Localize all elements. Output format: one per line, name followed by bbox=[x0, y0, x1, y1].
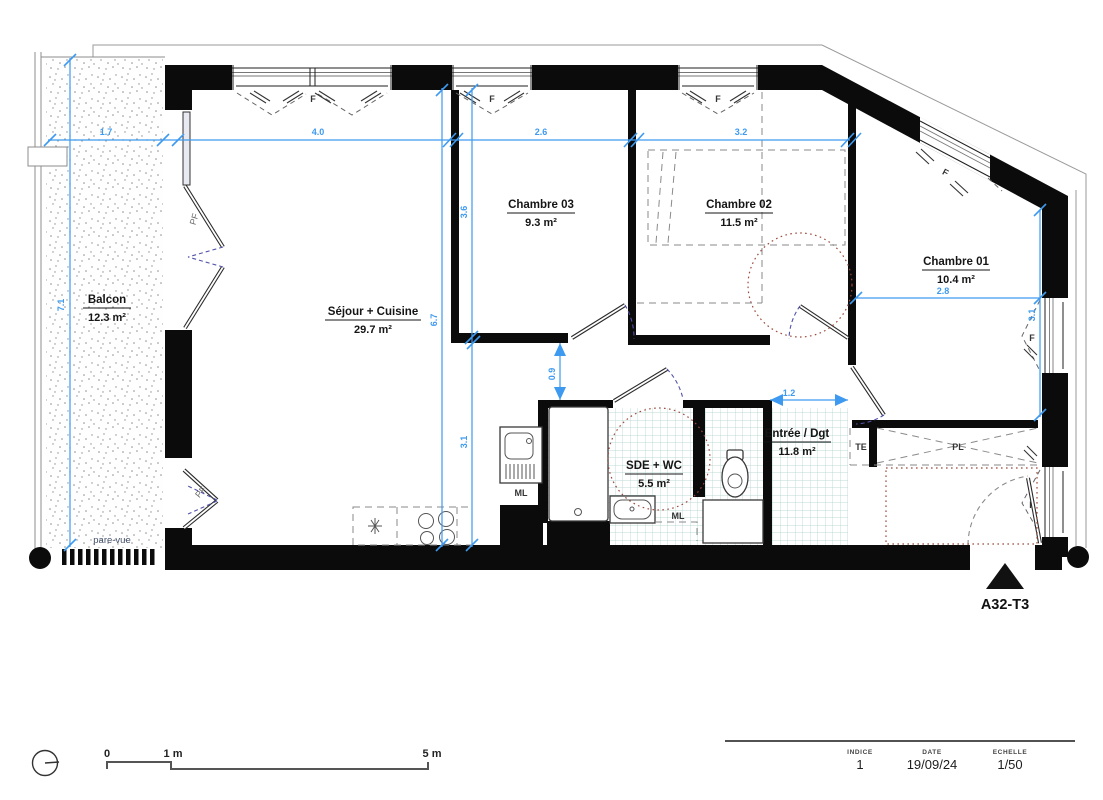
svg-text:5.5 m²: 5.5 m² bbox=[638, 478, 670, 490]
balcony-french-door-upper: PF bbox=[185, 186, 223, 328]
scale-five-meters: 5 m bbox=[423, 748, 442, 760]
kitchen-washer-unit: ML bbox=[500, 427, 542, 498]
dim-chambre01-width: 2.8 bbox=[937, 286, 950, 296]
window-label: F bbox=[715, 94, 721, 104]
dim-sejour-south-height: 3.1 bbox=[459, 436, 469, 449]
balcony-french-door-lower: PF bbox=[184, 470, 217, 528]
svg-text:Balcon: Balcon bbox=[88, 294, 126, 306]
indice-label: INDICE bbox=[847, 749, 873, 756]
chambre02-door bbox=[789, 306, 848, 339]
bathroom-door bbox=[614, 369, 683, 401]
room-label-chambre02: Chambre 02 11.5 m² bbox=[705, 199, 773, 229]
indice-value: 1 bbox=[856, 757, 863, 772]
svg-text:Entrée / Dgt: Entrée / Dgt bbox=[765, 428, 830, 440]
echelle-value: 1/50 bbox=[997, 757, 1022, 772]
dim-balcony-width: 1.7 bbox=[100, 127, 113, 137]
window-label: F bbox=[941, 167, 951, 179]
date-label: DATE bbox=[922, 749, 942, 756]
privacy-screen-label: pare-vue bbox=[93, 535, 131, 546]
entrance-marker: A32-T3 bbox=[981, 563, 1029, 613]
title-block: INDICE 1 DATE 19/09/24 ECHELLE 1/50 bbox=[725, 741, 1075, 772]
svg-text:11.5 m²: 11.5 m² bbox=[720, 217, 758, 229]
closet-label: PL bbox=[952, 442, 964, 452]
shower-tray bbox=[549, 407, 608, 521]
turning-circle-chambre02 bbox=[748, 233, 852, 337]
dim-hall-width: 0.9 bbox=[547, 368, 557, 381]
french-door-label: PF bbox=[193, 484, 208, 500]
echelle-label: ECHELLE bbox=[993, 749, 1028, 756]
svg-text:9.3 m²: 9.3 m² bbox=[525, 217, 557, 229]
dim-sejour-height: 6.7 bbox=[429, 314, 439, 327]
dim-chambre03-height: 3.6 bbox=[459, 206, 469, 219]
date-value: 19/09/24 bbox=[907, 757, 958, 772]
svg-text:Chambre 01: Chambre 01 bbox=[923, 256, 989, 268]
window-label: F bbox=[310, 94, 316, 104]
svg-text:29.7 m²: 29.7 m² bbox=[354, 324, 392, 336]
window-label: F bbox=[489, 94, 495, 104]
dim-chambre03-width: 2.6 bbox=[535, 127, 548, 137]
dim-chambre01-height: 3.1 bbox=[1027, 309, 1037, 322]
entrance-triangle-icon bbox=[986, 563, 1024, 589]
privacy-screen-hatch bbox=[62, 549, 155, 565]
svg-text:12.3 m²: 12.3 m² bbox=[88, 312, 126, 324]
chambre02-window: F bbox=[678, 65, 758, 114]
scale-one-meter: 1 m bbox=[164, 748, 183, 760]
electrical-panel-label: TE bbox=[855, 442, 867, 452]
wc-duct-box bbox=[703, 500, 763, 543]
balcony-zone bbox=[28, 52, 165, 569]
chambre03-window: F bbox=[452, 65, 532, 114]
dim-entry-width: 1.2 bbox=[783, 388, 796, 398]
floor-plan-drawing: F F bbox=[0, 0, 1103, 800]
washer-label: ML bbox=[515, 488, 528, 498]
floor-plan-page: F F bbox=[0, 0, 1103, 800]
french-door-label: PF bbox=[188, 212, 201, 226]
scale-bar: 0 1 m 5 m bbox=[104, 748, 442, 769]
stove-burners bbox=[419, 512, 455, 545]
svg-text:11.8 m²: 11.8 m² bbox=[778, 446, 816, 458]
room-label-chambre01: Chambre 01 10.4 m² bbox=[922, 256, 990, 286]
sink-symbol bbox=[368, 518, 382, 534]
svg-text:Chambre 02: Chambre 02 bbox=[706, 199, 772, 211]
balcony-divider-panel bbox=[28, 147, 67, 166]
kitchen-counter bbox=[353, 507, 472, 545]
column-right bbox=[1067, 546, 1089, 568]
entrance-door bbox=[968, 476, 1040, 545]
svg-text:SDE + WC: SDE + WC bbox=[626, 460, 682, 472]
dim-balcony-height: 7.1 bbox=[56, 299, 66, 312]
svg-text:10.4 m²: 10.4 m² bbox=[937, 274, 975, 286]
closets: TE PL bbox=[850, 428, 1038, 465]
dim-sejour-width: 4.0 bbox=[312, 127, 325, 137]
room-label-sejour: Séjour + Cuisine 29.7 m² bbox=[325, 306, 421, 336]
dim-chambre02-width: 3.2 bbox=[735, 127, 748, 137]
plan-id: A32-T3 bbox=[981, 597, 1029, 613]
room-label-chambre03: Chambre 03 9.3 m² bbox=[507, 199, 575, 229]
washer-label: ML bbox=[672, 511, 685, 521]
window-label: F bbox=[1029, 333, 1035, 343]
scale-zero: 0 bbox=[104, 748, 110, 760]
north-compass bbox=[33, 751, 60, 776]
sejour-window: F bbox=[232, 65, 392, 115]
svg-text:Chambre 03: Chambre 03 bbox=[508, 199, 574, 211]
svg-text:Séjour + Cuisine: Séjour + Cuisine bbox=[328, 306, 418, 318]
column-left bbox=[29, 547, 51, 569]
balcony-door-fixed-glass bbox=[183, 112, 190, 185]
chambre01-door bbox=[852, 367, 884, 424]
chambre03-door bbox=[572, 305, 634, 339]
